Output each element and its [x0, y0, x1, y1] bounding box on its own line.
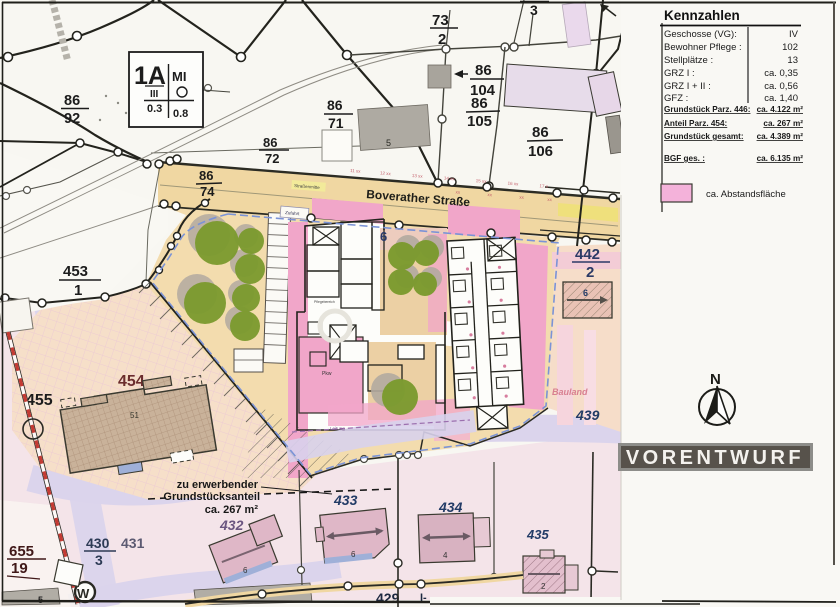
- svg-text:72: 72: [265, 151, 279, 166]
- svg-text:453: 453: [63, 263, 88, 280]
- svg-text:GRZ I + II :: GRZ I + II :: [664, 81, 711, 92]
- svg-text:431: 431: [121, 535, 145, 551]
- svg-text:434: 434: [438, 499, 463, 515]
- svg-text:11 xx: 11 xx: [350, 168, 362, 174]
- svg-text:86: 86: [199, 168, 213, 183]
- svg-text:Anteil Parz. 454:: Anteil Parz. 454:: [664, 119, 727, 128]
- svg-text:6: 6: [243, 566, 248, 575]
- svg-text:IV: IV: [789, 29, 799, 40]
- svg-text:86: 86: [327, 97, 343, 113]
- svg-text:16 xx: 16 xx: [507, 181, 519, 187]
- svg-text:3: 3: [95, 552, 103, 568]
- svg-text:105: 105: [467, 113, 492, 130]
- svg-text:86: 86: [471, 95, 488, 112]
- svg-text:zu erwerbender: zu erwerbender: [177, 479, 259, 491]
- svg-text:ca. 1,40: ca. 1,40: [764, 93, 798, 104]
- svg-text:432: 432: [219, 517, 244, 533]
- svg-text:Stellplätze :: Stellplätze :: [664, 55, 713, 66]
- svg-text:454: 454: [118, 373, 145, 390]
- svg-text:12 xx: 12 xx: [380, 170, 392, 176]
- svg-text:ca. Abstandsfläche: ca. Abstandsfläche: [706, 189, 786, 200]
- svg-text:W: W: [77, 586, 90, 601]
- svg-text:ca. 267 m²: ca. 267 m²: [205, 504, 259, 516]
- svg-text:6: 6: [380, 229, 387, 244]
- svg-text:Bauland: Bauland: [552, 387, 588, 397]
- svg-text:73: 73: [432, 12, 449, 29]
- svg-text:429: 429: [376, 590, 400, 606]
- svg-text:51: 51: [130, 411, 139, 420]
- svg-text:Kennzahlen: Kennzahlen: [664, 8, 740, 23]
- svg-text:VORENTWURF: VORENTWURF: [626, 447, 804, 469]
- svg-text:439: 439: [575, 407, 600, 423]
- svg-text:0.8: 0.8: [173, 108, 188, 120]
- svg-text:5: 5: [386, 138, 391, 148]
- svg-text:74: 74: [200, 184, 215, 199]
- svg-text:86: 86: [64, 93, 80, 109]
- svg-text:92: 92: [64, 111, 80, 127]
- svg-text:Grundstück Parz. 446:: Grundstück Parz. 446:: [664, 105, 750, 114]
- svg-text:Geschosse (VG):: Geschosse (VG):: [664, 29, 737, 40]
- svg-text:MI: MI: [172, 69, 186, 84]
- svg-text:III: III: [150, 89, 159, 100]
- svg-text:Pkw: Pkw: [322, 371, 332, 377]
- svg-text:ca. 4.389 m²: ca. 4.389 m²: [757, 132, 804, 141]
- svg-text:N: N: [710, 371, 721, 388]
- svg-text:106: 106: [528, 143, 553, 160]
- svg-text:6: 6: [583, 288, 588, 298]
- svg-text:430: 430: [86, 535, 110, 551]
- svg-text:GRZ I :: GRZ I :: [664, 68, 695, 79]
- svg-text:86: 86: [475, 62, 492, 79]
- svg-text:102: 102: [782, 42, 798, 53]
- svg-text:6: 6: [351, 550, 356, 559]
- svg-text:14 xx: 14 xx: [444, 176, 456, 182]
- svg-text:13 xx: 13 xx: [412, 173, 424, 179]
- svg-text:71: 71: [328, 115, 344, 131]
- svg-text:442: 442: [575, 246, 600, 263]
- svg-text:435: 435: [526, 527, 549, 542]
- svg-text:2: 2: [541, 582, 546, 591]
- svg-text:86: 86: [263, 135, 277, 150]
- svg-text:433: 433: [333, 492, 358, 508]
- svg-text:ca. 0,35: ca. 0,35: [764, 68, 798, 79]
- svg-text:Grundstück gesamt:: Grundstück gesamt:: [664, 132, 744, 141]
- svg-text:3: 3: [530, 2, 538, 18]
- svg-text:455: 455: [26, 392, 53, 409]
- svg-text:Bewohner Pflege :: Bewohner Pflege :: [664, 42, 742, 53]
- svg-text:ca. 6.135 m²: ca. 6.135 m²: [757, 154, 804, 163]
- svg-text:17 x: 17 x: [539, 183, 549, 189]
- svg-text:ca. 0,56: ca. 0,56: [764, 81, 798, 92]
- svg-text:GFZ :: GFZ :: [664, 93, 688, 104]
- svg-text:Pflegebereich: Pflegebereich: [314, 300, 335, 304]
- svg-text:19: 19: [11, 560, 28, 577]
- svg-text:13: 13: [787, 55, 798, 66]
- svg-text:ca. 267 m²: ca. 267 m²: [763, 119, 803, 128]
- svg-text:2: 2: [586, 264, 594, 281]
- svg-text:0.3: 0.3: [147, 103, 162, 115]
- svg-text:1: 1: [74, 282, 82, 299]
- svg-text:ca. 4.122 m²: ca. 4.122 m²: [757, 105, 804, 114]
- svg-text:BGF ges. :: BGF ges. :: [664, 154, 705, 163]
- svg-text:2: 2: [438, 31, 446, 48]
- svg-text:Leitung: Leitung: [330, 426, 345, 431]
- svg-text:4: 4: [443, 551, 448, 560]
- svg-text:Grundstücksanteil: Grundstücksanteil: [163, 491, 260, 503]
- svg-text:86: 86: [532, 124, 549, 141]
- svg-text:655: 655: [9, 543, 34, 560]
